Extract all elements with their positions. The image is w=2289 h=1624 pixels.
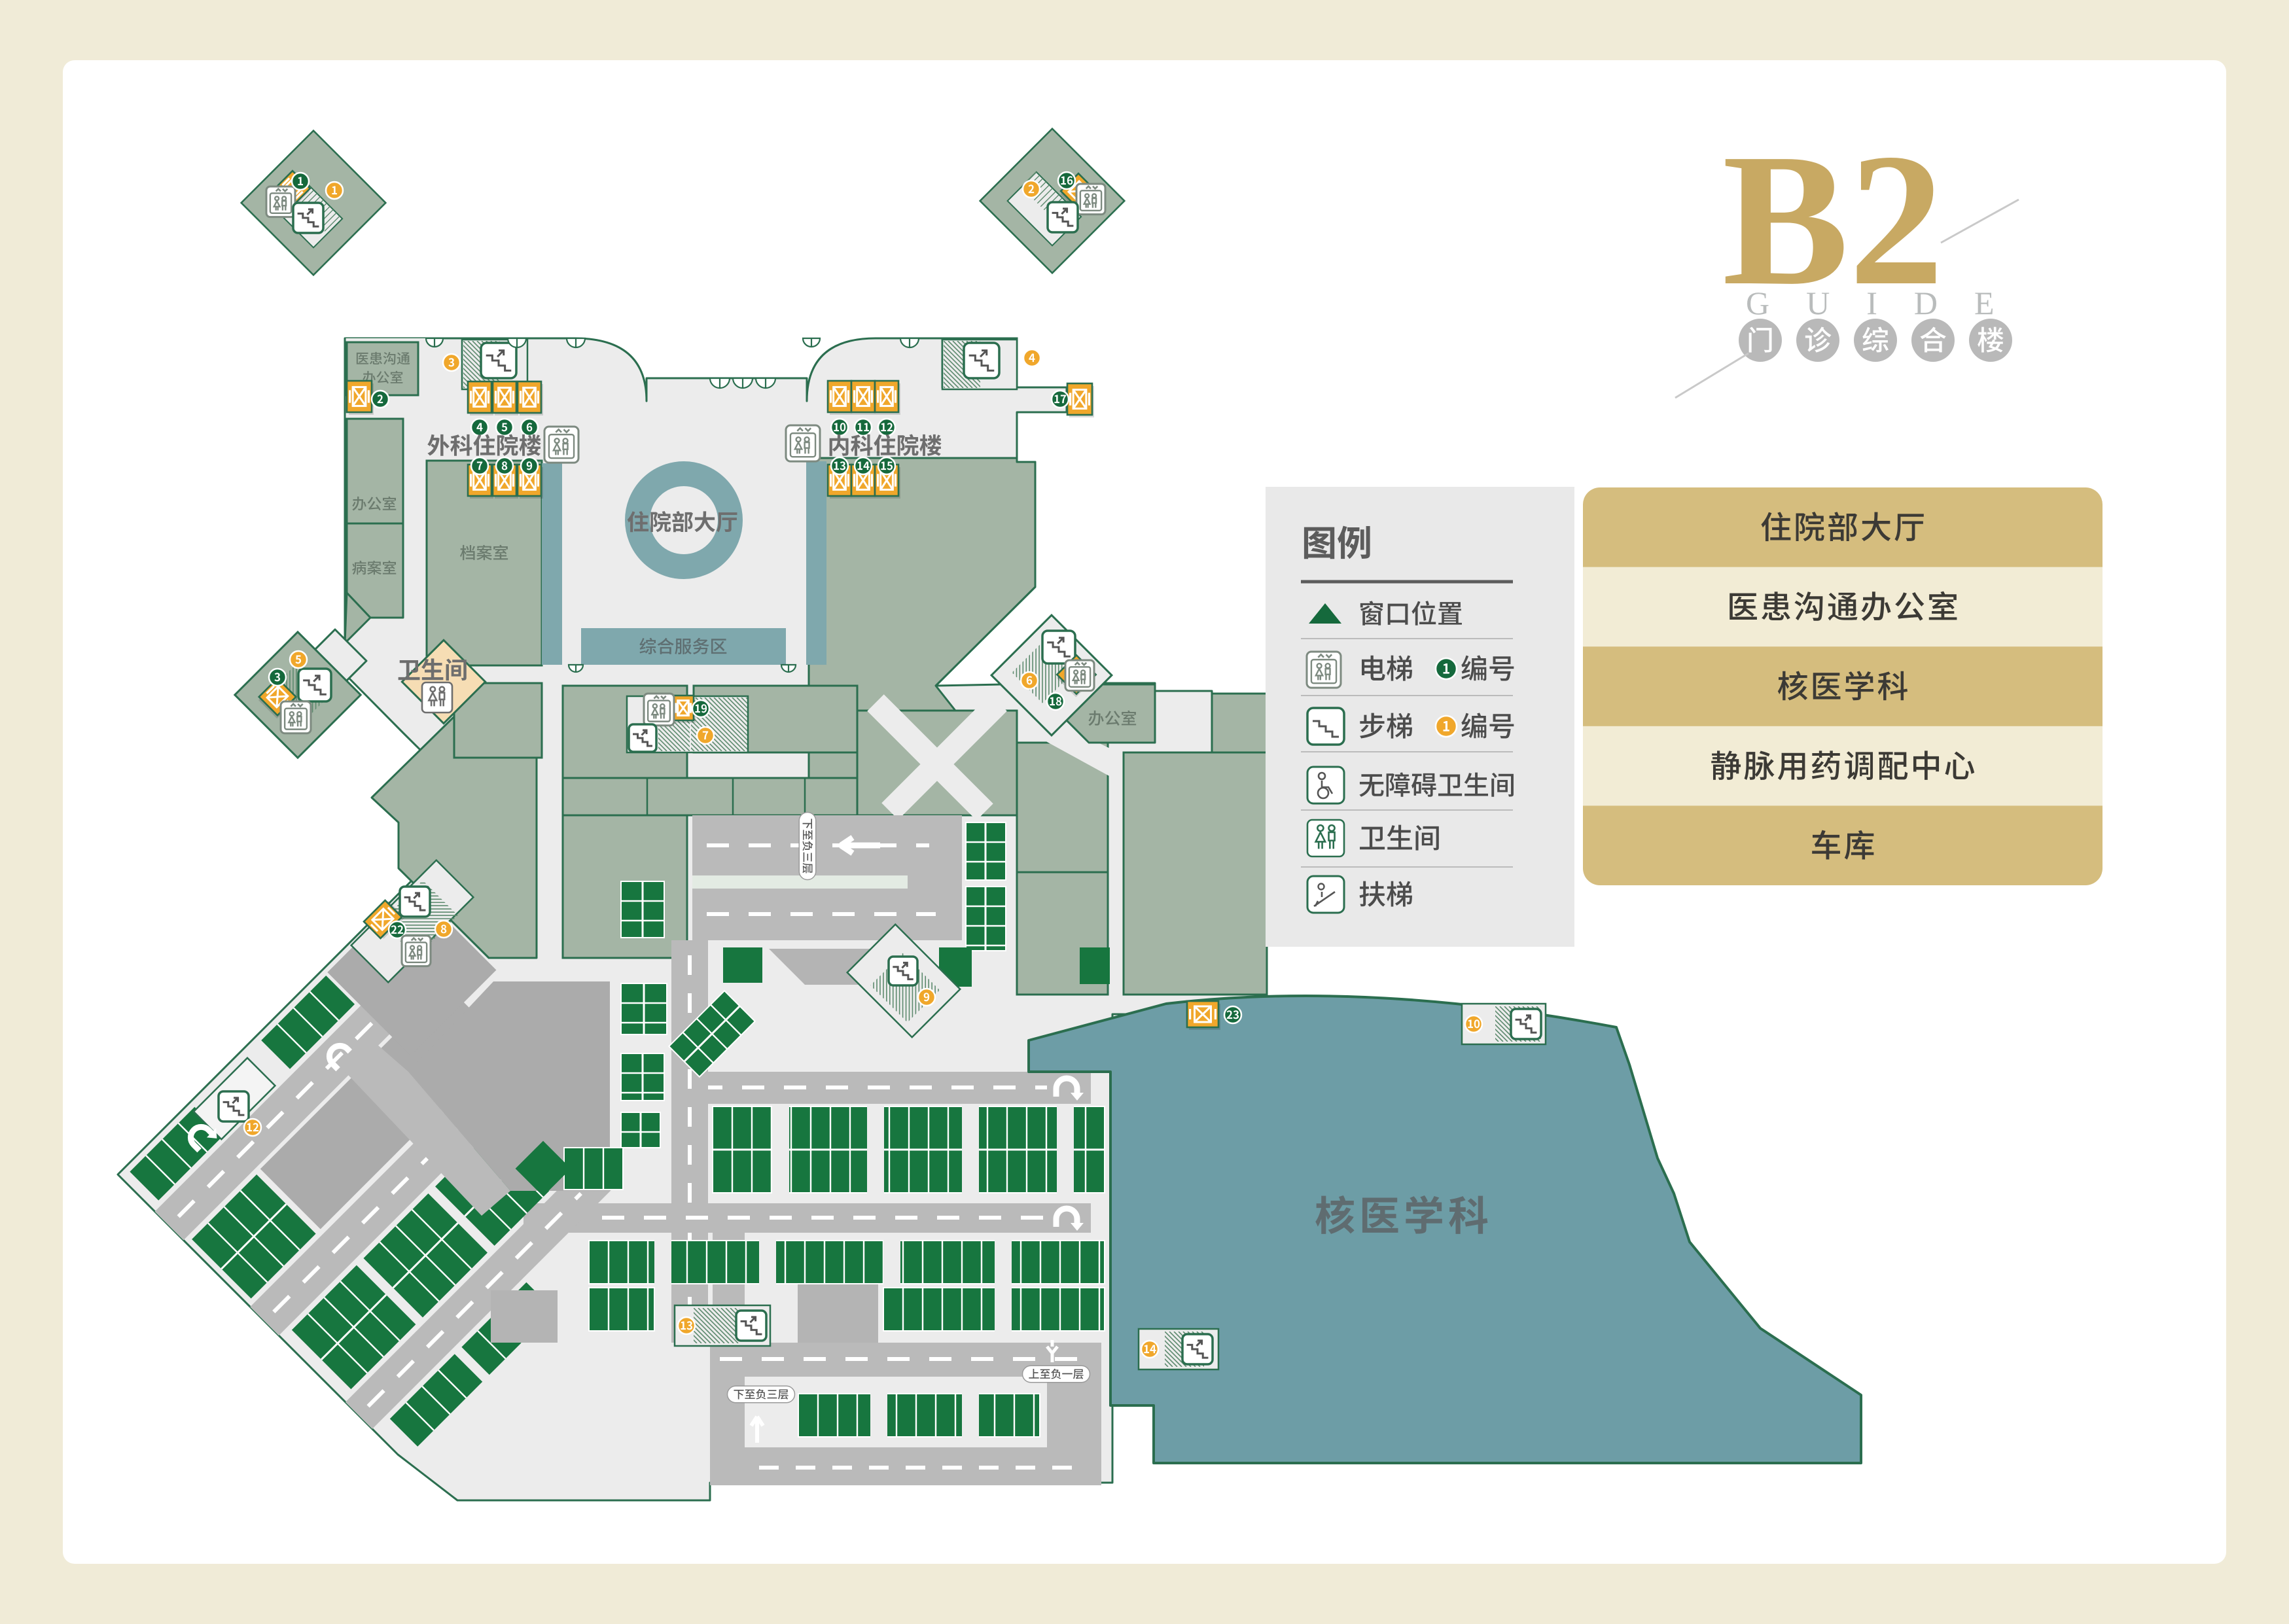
svg-text:GUIDE: GUIDE	[1746, 285, 2031, 321]
